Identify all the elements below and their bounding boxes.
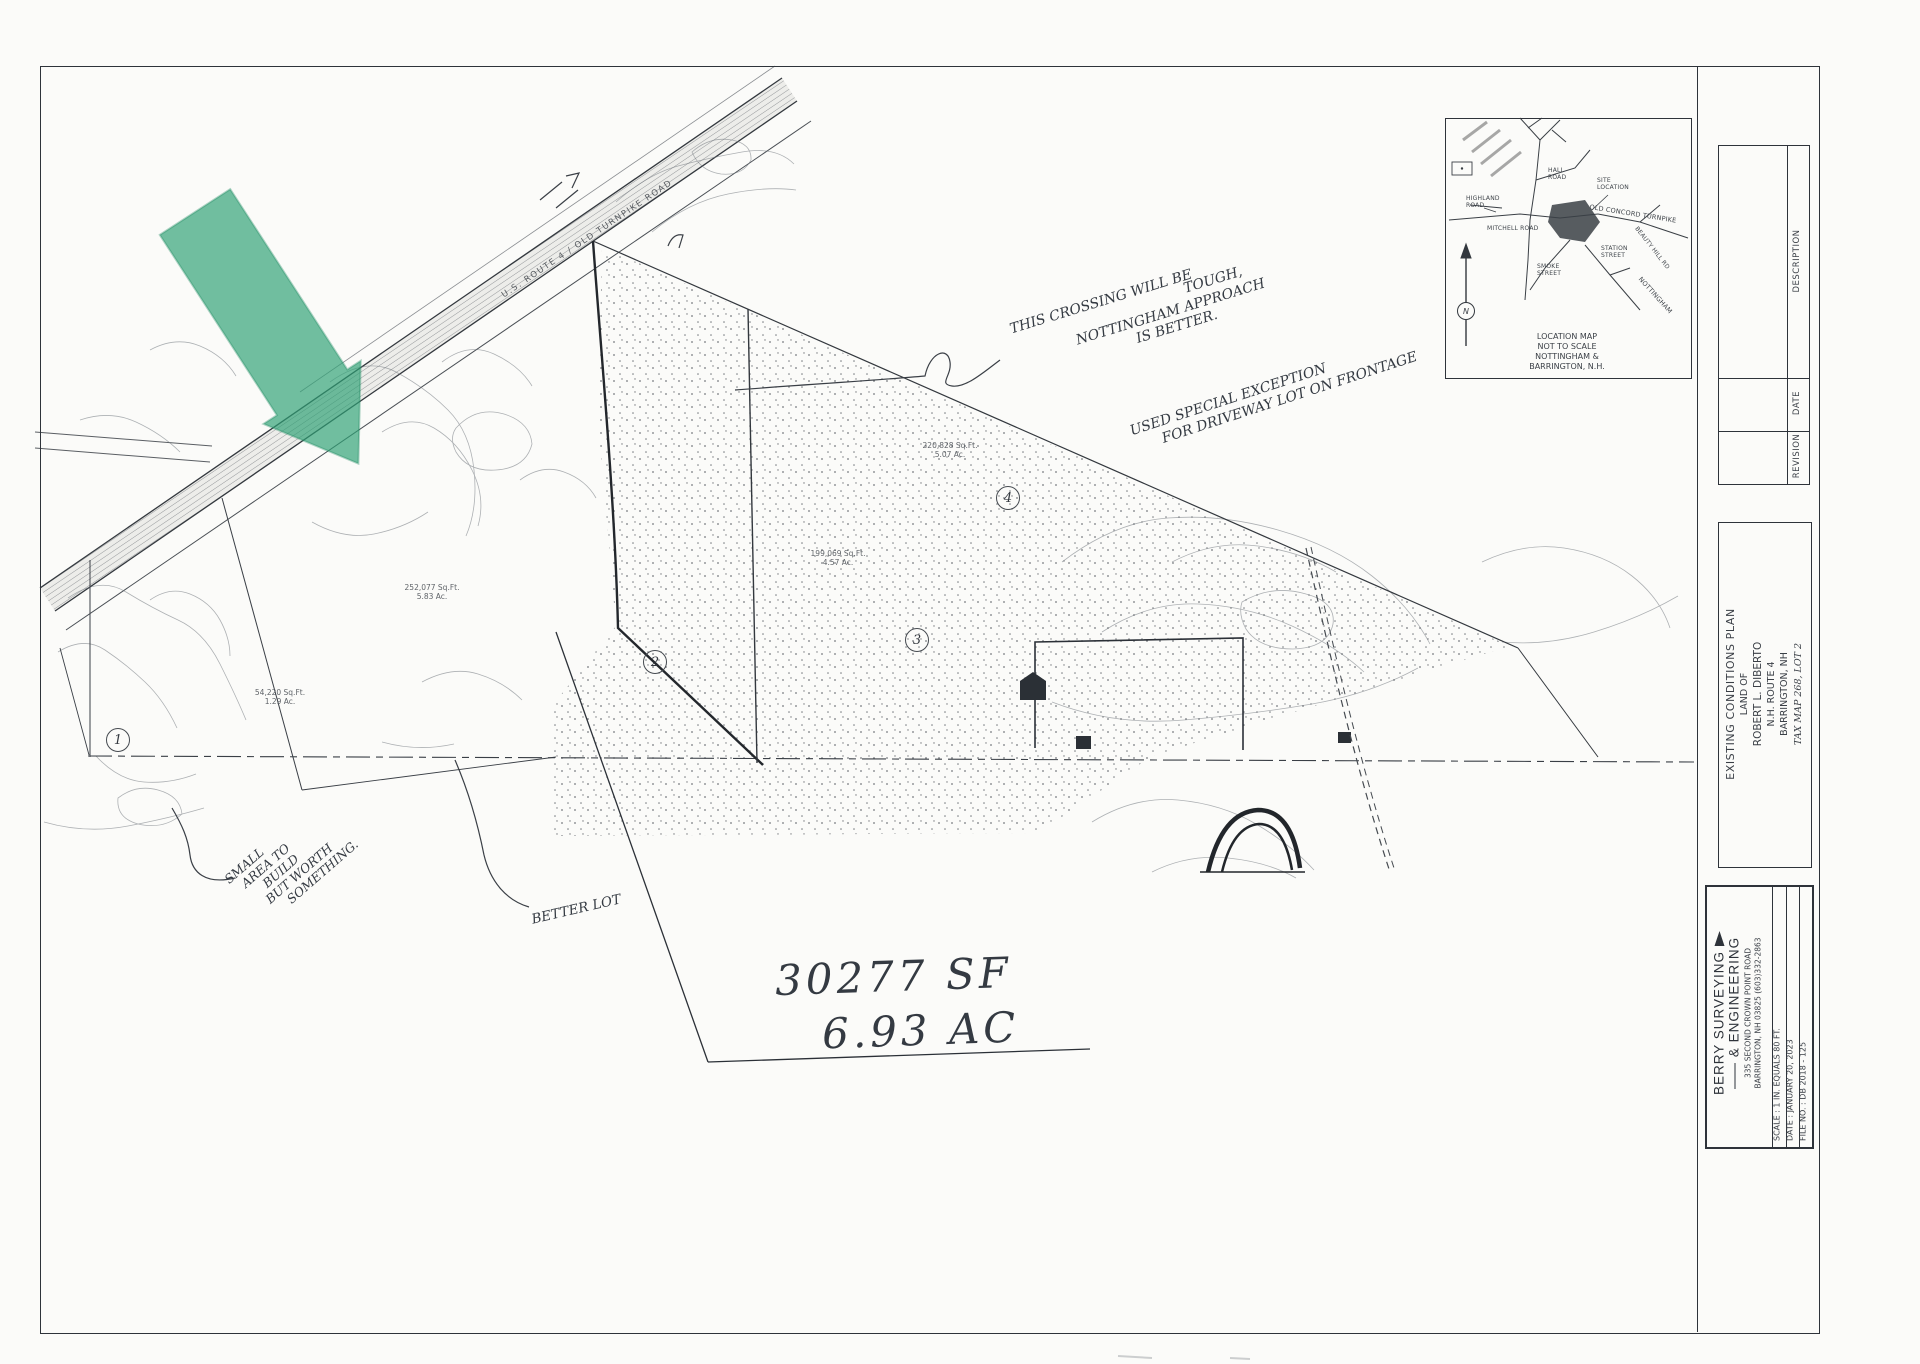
- plan-title-line3: ROBERT L. DIBERTO: [1752, 522, 1764, 866]
- lot4-number-circle: 4: [996, 486, 1020, 510]
- inset-label-station-street: STATION STREET: [1601, 246, 1633, 259]
- lot1-area-label: 54,220 Sq.Ft. 1.29 Ac.: [255, 688, 305, 706]
- plan-title-line6: TAX MAP 268, LOT 2: [1793, 522, 1804, 866]
- lot2-number-circle: 2: [643, 650, 667, 674]
- firm-name2-text: & ENGINEERING: [1727, 937, 1742, 1057]
- inset-label-mitchell-road: MITCHELL ROAD: [1487, 226, 1551, 233]
- firm-address-line1: 335 SECOND CROWN POINT ROAD: [1744, 887, 1753, 1139]
- revision-col-revision: REVISION: [1792, 434, 1802, 479]
- plan-title-line2: LAND OF: [1739, 522, 1750, 866]
- area-sf-handwriting: 30277 SF: [774, 948, 1012, 1005]
- inset-north-circle: N: [1457, 302, 1475, 320]
- plan-title-line5: BARRINGTON, NH: [1779, 522, 1790, 866]
- lot4-sqft: 220,828 Sq.Ft.: [923, 441, 978, 450]
- firm-identity: BERRY SURVEYING & ENGINEERING 335 SECOND…: [1712, 887, 1763, 1139]
- lot3-sqft: 199,069 Sq.Ft.: [811, 549, 866, 558]
- lot3-area-label: 199,069 Sq.Ft. 4.57 Ac.: [811, 549, 866, 567]
- revision-table-label-divider: [1787, 146, 1788, 484]
- lot2-acres: 5.83 Ac.: [405, 592, 460, 601]
- location-map-caption: LOCATION MAP NOT TO SCALE NOTTINGHAM & B…: [1497, 332, 1637, 372]
- lot2-sqft: 252,077 Sq.Ft.: [405, 583, 460, 592]
- location-map-caption-line1: LOCATION MAP: [1497, 332, 1637, 342]
- location-map-caption-line2: NOT TO SCALE: [1497, 342, 1637, 352]
- firm-name1-text: BERRY SURVEYING: [1712, 951, 1727, 1095]
- lot2-area-label: 252,077 Sq.Ft. 5.83 Ac.: [405, 583, 460, 601]
- scan-noise: [1118, 1356, 1250, 1359]
- inset-north-letter: N: [1463, 307, 1469, 316]
- firm-file-no: FILE NO. : DB 2018 - 125: [1799, 889, 1808, 1141]
- firm-address-line2: BARRINGTON, NH 03825 (603)332-2863: [1754, 887, 1763, 1139]
- inset-label-hall-road: HALL ROAD: [1548, 168, 1574, 181]
- firm-logo-dash-icon: [1734, 1063, 1735, 1089]
- lot1-sqft: 54,220 Sq.Ft.: [255, 688, 305, 697]
- inset-label-smoke-street: SMOKE STREET: [1537, 264, 1567, 277]
- revision-col-description: DESCRIPTION: [1792, 229, 1802, 292]
- revision-table-row-line: [1719, 378, 1809, 379]
- firm-logo-arrow-icon: [1715, 931, 1725, 946]
- plan-title-text: EXISTING CONDITIONS PLAN LAND OF ROBERT …: [1724, 522, 1804, 866]
- lot4-number: 4: [1004, 491, 1012, 506]
- plan-title-line1: EXISTING CONDITIONS PLAN: [1724, 522, 1737, 866]
- scanned-survey-sheet: DESCRIPTION DATE REVISION EXISTING CONDI…: [0, 0, 1920, 1364]
- firm-name-line2: & ENGINEERING: [1727, 887, 1742, 1139]
- lot1-acres: 1.29 Ac.: [255, 697, 305, 706]
- area-ac-handwriting: 6.93 AC: [821, 1003, 1020, 1059]
- lot4-area-label: 220,828 Sq.Ft. 5.07 Ac.: [923, 441, 978, 459]
- lot4-acres: 5.07 Ac.: [923, 450, 978, 459]
- firm-scale: SCALE : 1 IN. EQUALS 80 FT.: [1773, 889, 1782, 1141]
- lot3-number-circle: 3: [905, 628, 929, 652]
- firm-date: DATE : JANUARY 20, 2023: [1786, 889, 1795, 1141]
- lot2-number: 2: [651, 655, 659, 670]
- location-map-caption-line3: NOTTINGHAM &: [1497, 352, 1637, 362]
- inset-label-site-location: SITE LOCATION: [1597, 178, 1631, 191]
- lot3-number: 3: [913, 633, 921, 648]
- lot3-acres: 4.57 Ac.: [811, 558, 866, 567]
- revision-col-date: DATE: [1792, 391, 1802, 415]
- lot1-number-circle: 1: [106, 728, 130, 752]
- title-column-divider: [1697, 66, 1698, 1332]
- location-map-caption-line4: BARRINGTON, N.H.: [1497, 362, 1637, 372]
- lot1-number: 1: [114, 733, 122, 748]
- firm-name-line1: BERRY SURVEYING: [1712, 887, 1727, 1139]
- revision-table-row-line: [1719, 431, 1809, 432]
- inset-label-highland-road: HIGHLAND ROAD: [1466, 196, 1502, 209]
- plan-title-line4: N.H. ROUTE 4: [1766, 522, 1777, 866]
